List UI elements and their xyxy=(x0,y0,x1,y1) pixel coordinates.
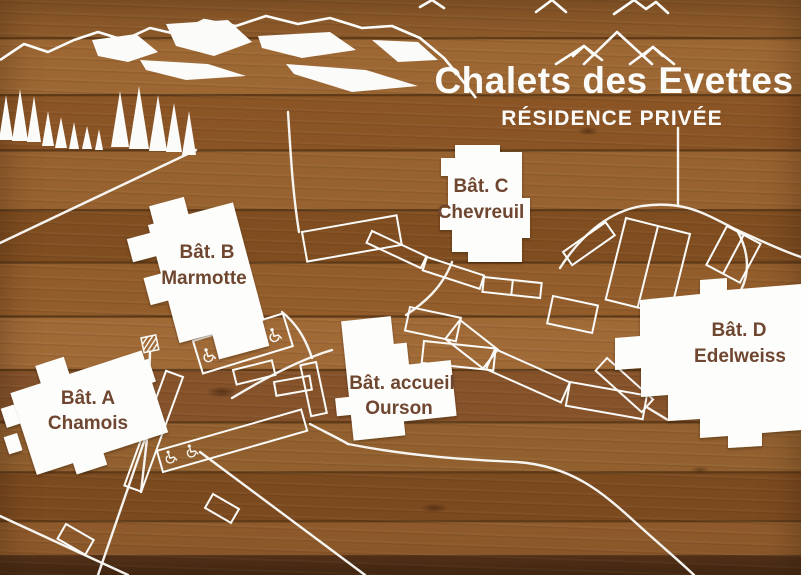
wood-site-map-panel: Bât. A Chamois Bât. B Marmotte Bât. C Ch… xyxy=(0,0,801,575)
wheelchair-icon xyxy=(268,326,282,342)
bat-a-label-line2: Chamois xyxy=(48,413,128,434)
parking-row xyxy=(445,320,498,368)
mountain-ridge-icon xyxy=(0,16,476,98)
wheelchair-icon xyxy=(202,347,216,363)
parking-stall xyxy=(58,524,94,555)
parking-stall xyxy=(233,360,275,384)
bat-c-label-line1: Bât. C xyxy=(454,176,509,197)
bat-accueil-label-line1: Bât. accueil xyxy=(349,373,455,394)
bat-c-label-line2: Chevreuil xyxy=(438,202,525,223)
bat-a-label-line1: Bât. A xyxy=(61,388,115,409)
parking-stall xyxy=(205,494,239,523)
hatched-marker-icon xyxy=(141,335,159,353)
page-subtitle: RÉSIDENCE PRIVÉE xyxy=(501,107,722,130)
buildings xyxy=(0,145,801,492)
wheelchair-icon xyxy=(185,443,198,458)
bat-d-label-line1: Bât. D xyxy=(712,320,767,341)
parking-pair xyxy=(482,277,541,298)
bat-b-label-line1: Bât. B xyxy=(180,242,235,263)
site-map: Bât. A Chamois Bât. B Marmotte Bât. C Ch… xyxy=(0,0,801,575)
parking-row xyxy=(566,382,647,419)
parking-row xyxy=(300,362,326,416)
page-title: Chalets des Evettes xyxy=(434,60,793,101)
parking-row xyxy=(486,349,570,402)
accessible-parking-row xyxy=(157,410,307,472)
top-edge-peak-lines xyxy=(420,0,668,14)
parking-row xyxy=(563,222,615,265)
pine-trees xyxy=(0,86,196,155)
parking-row xyxy=(547,296,598,333)
bat-d-label-line2: Edelweiss xyxy=(694,346,786,367)
bat-accueil-label-line2: Ourson xyxy=(365,398,433,419)
parking-grid xyxy=(706,226,760,283)
parking-row xyxy=(405,307,461,341)
wheelchair-icon xyxy=(164,449,177,464)
bat-b-label-line2: Marmotte xyxy=(161,268,247,289)
